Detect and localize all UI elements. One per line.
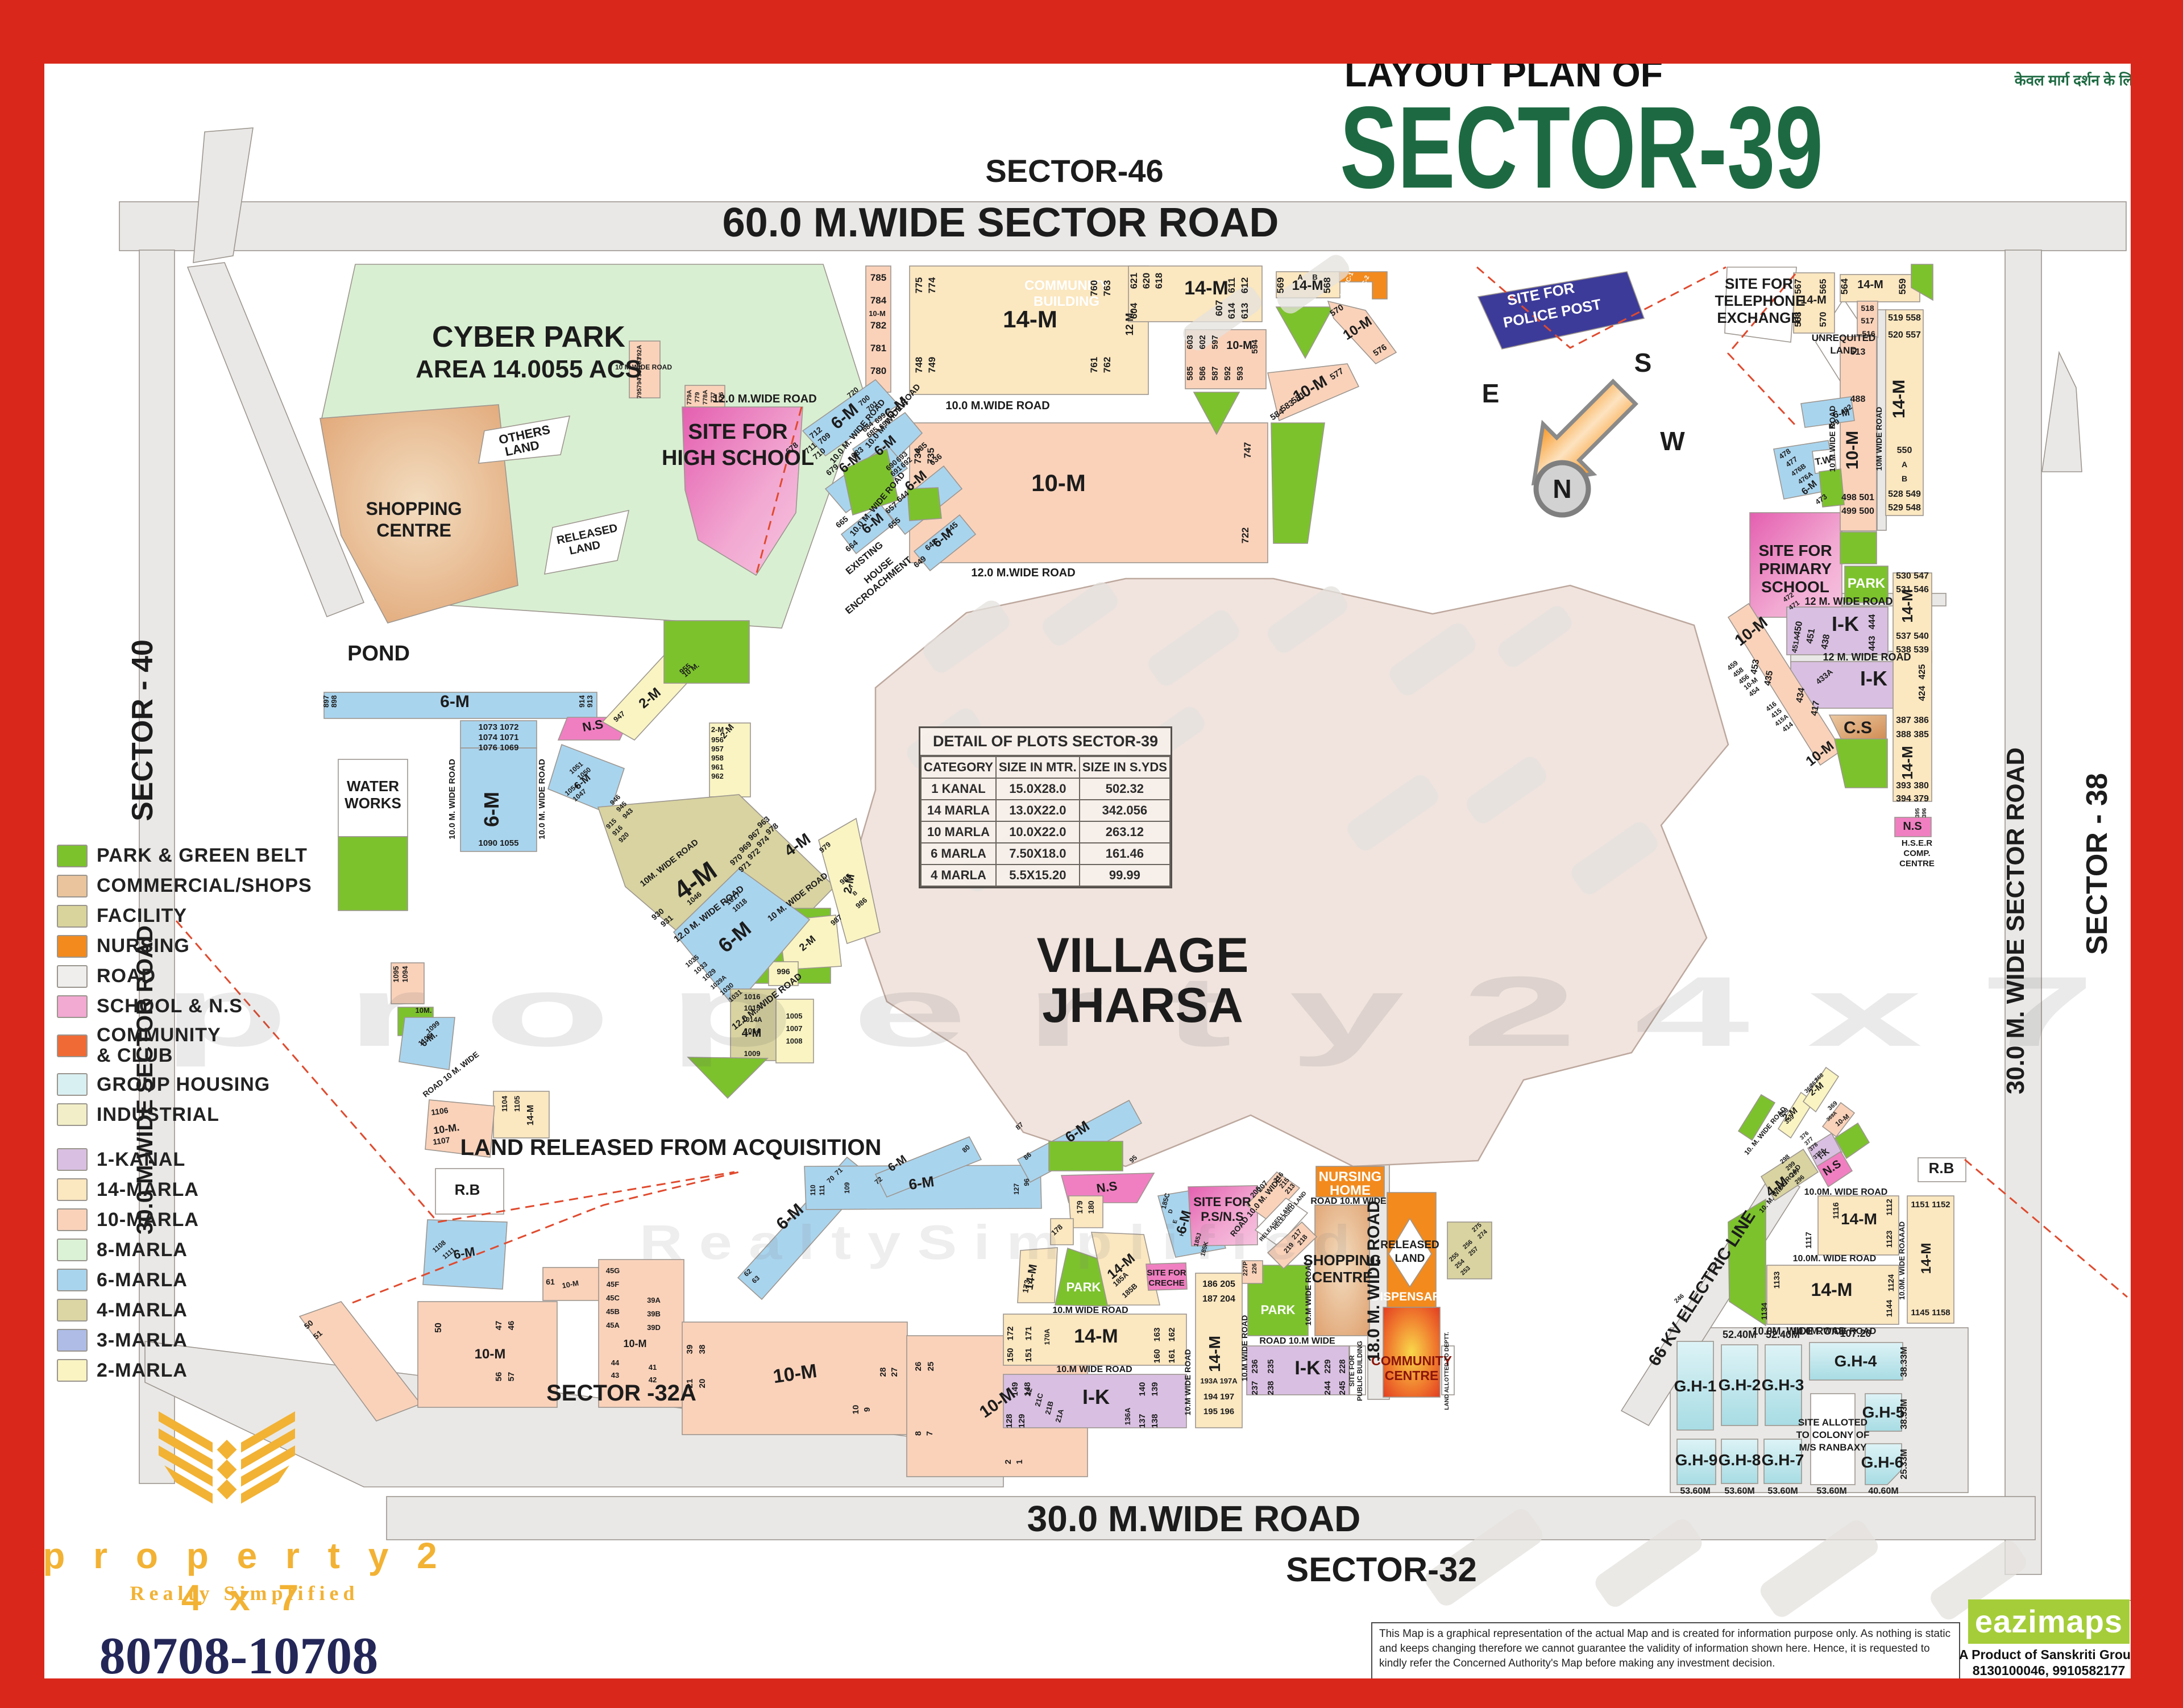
map-label: I-K <box>1082 1385 1110 1408</box>
map-label: 913 <box>586 695 594 708</box>
map-label: M/S RANBAXY <box>1799 1442 1867 1453</box>
map-label: C.S <box>1844 718 1872 737</box>
green-cs <box>1835 739 1887 788</box>
map-label: 180 <box>1086 1200 1095 1214</box>
map-label: SITE FOR <box>1725 275 1793 292</box>
map-label: LAND <box>1395 1253 1425 1265</box>
map-label: S <box>1634 348 1652 377</box>
map-label: 14-M <box>1841 1210 1877 1228</box>
map-label: 6-M <box>480 792 503 827</box>
map-label: SITE ALLOTED <box>1798 1417 1867 1428</box>
map-label: 193A 197A <box>1200 1377 1238 1385</box>
plot-table-cell: 4 MARLA <box>921 865 996 886</box>
map-label: PUBLIC BUILDING <box>1356 1341 1364 1401</box>
plot-table-header: SIZE IN MTR. <box>996 757 1080 778</box>
map-label: 10.0M. WIDE ROAD <box>1793 1327 1877 1336</box>
map-label: 245 <box>1338 1381 1347 1395</box>
legend-item-group-housing: GROUP HOUSING <box>57 1073 312 1096</box>
map-label: 762 <box>1102 357 1113 373</box>
map-label: 10-M <box>623 1338 646 1349</box>
legend-swatch <box>57 1103 88 1126</box>
plot-table-header: CATEGORY <box>921 757 996 778</box>
map-label: CRECHE <box>1148 1278 1184 1288</box>
map-label: SECTOR-32 <box>1286 1551 1477 1589</box>
map-label: G.H-4 <box>1835 1352 1877 1370</box>
map-label: 6-M <box>907 1173 935 1193</box>
map-label: 46 <box>507 1321 516 1331</box>
map-label: 39 <box>685 1345 695 1354</box>
plot-table-row: 4 MARLA5.5X15.2099.99 <box>921 865 1170 886</box>
legend-swatch <box>57 1299 88 1321</box>
map-label: 21 <box>685 1379 695 1389</box>
map-label: 594 <box>1250 339 1260 354</box>
map-label: TELEPHONE <box>1715 292 1806 309</box>
map-label: 570 <box>1819 312 1828 327</box>
map-label: 517 <box>1861 316 1874 325</box>
map-label: 14-M <box>1184 277 1228 299</box>
map-label: 395 <box>1915 808 1921 817</box>
disclaimer-text: This Map is a graphical representation o… <box>1371 1622 1960 1681</box>
map-label: 1005 <box>786 1012 803 1020</box>
map-label: 10-M <box>475 1347 506 1362</box>
map-label: 568 <box>1322 277 1333 293</box>
legend-item-industrial: INDUSTRIAL <box>57 1103 312 1126</box>
legend-item-2-marla: 2-MARLA <box>57 1359 312 1382</box>
acquisition-boundary-dash <box>1965 1160 2127 1297</box>
map-label: 499 500 <box>1841 506 1874 516</box>
map-label: NURSING <box>1319 1169 1382 1185</box>
map-label: 161 <box>1167 1349 1177 1363</box>
map-label: 898 <box>330 695 338 708</box>
map-label: 1073 1072 <box>479 722 519 732</box>
map-label: 897 <box>322 695 330 708</box>
map-label: R.B <box>1929 1160 1954 1177</box>
map-label: 761 <box>1089 357 1099 373</box>
legend-label: 4-MARLA <box>97 1300 188 1321</box>
legend-label: ROAD <box>97 966 156 987</box>
map-label: 567 <box>1794 279 1803 294</box>
map-label: 1074 1071 <box>479 733 519 742</box>
map-label: 186 205 <box>1202 1279 1235 1289</box>
map-label: LAND RELEASED FROM ACQUISITION <box>460 1135 882 1160</box>
map-label: 957 <box>711 745 724 753</box>
map-label: PRIMARY <box>1759 560 1832 577</box>
map-label: 14-M <box>1003 306 1057 333</box>
map-label: 45F <box>607 1280 619 1289</box>
map-label: 14-M <box>526 1105 536 1125</box>
map-label: 612 <box>1239 277 1250 293</box>
map-label: 1 <box>1015 1460 1024 1464</box>
map-label: ROAD 10.M WIDE <box>1310 1196 1387 1206</box>
map-label: 568 <box>1794 312 1803 327</box>
map-label: 10-M <box>1031 469 1086 496</box>
map-label: 38 <box>698 1345 707 1354</box>
frame-border-bottom <box>0 1678 2183 1708</box>
map-label: 488 <box>1850 394 1866 404</box>
map-label: SITE FOR <box>688 420 787 444</box>
map-label: 621 <box>1128 273 1139 289</box>
map-label: 10.0M. WIDE ROAD <box>1793 1254 1877 1264</box>
map-label: COMMUNITY <box>1371 1353 1452 1368</box>
map-label: 1144 <box>1885 1300 1894 1318</box>
map-label: 1145 1158 <box>1911 1308 1950 1318</box>
map-label: 14-M <box>1206 1336 1223 1372</box>
map-label: 760 <box>1089 280 1099 296</box>
map-label: 14-M <box>1800 294 1827 306</box>
map-label: G.H-5 <box>1862 1403 1905 1421</box>
map-label: 530 547 <box>1896 571 1929 581</box>
map-label: 529 548 <box>1888 503 1921 513</box>
legend-item-school-n-s: SCHOOL & N.S <box>57 995 312 1018</box>
map-label: N.S <box>1095 1179 1118 1196</box>
map-label: 537 540 <box>1896 631 1929 641</box>
map-label: 38.33M <box>1899 1399 1909 1429</box>
map-label: 528 549 <box>1888 489 1921 499</box>
map-label: I-K <box>1294 1357 1321 1379</box>
map-label: 618 <box>1153 273 1164 289</box>
legend-item-road: ROAD <box>57 965 312 988</box>
community-centre <box>1383 1307 1440 1397</box>
map-label: G.H-1 <box>1674 1377 1717 1395</box>
map-label: SHOPPING <box>366 498 462 519</box>
map-label: 53.60M <box>1680 1486 1710 1496</box>
map-label: 962 <box>711 772 724 780</box>
map-label: 778A <box>702 390 709 405</box>
map-label: 794 <box>636 377 643 388</box>
map-label: AREA 14.0055 ACS <box>416 355 642 383</box>
map-label: 604 <box>1128 302 1139 319</box>
map-label: 12.0 M.WIDE ROAD <box>971 567 1075 579</box>
map-label: 665 <box>834 514 850 529</box>
property24x7-logo-icon <box>156 1408 298 1508</box>
map-label: W <box>1660 426 1685 456</box>
map-label: 425 <box>1918 664 1927 680</box>
map-label: 569 <box>1275 277 1286 293</box>
map-label: 520 557 <box>1888 330 1921 340</box>
legend-swatch <box>57 845 88 867</box>
map-label: 42 <box>649 1375 657 1384</box>
plot-table-title: DETAIL OF PLOTS SECTOR-39 <box>920 728 1171 756</box>
map-label: G.H-2 <box>1719 1376 1761 1394</box>
map-label: 1015 <box>744 1004 761 1012</box>
map-label: G.H-3 <box>1762 1376 1804 1394</box>
map-label: 396 <box>1921 808 1928 817</box>
legend-label: COMMUNITY & CLUB <box>97 1025 221 1066</box>
map-label: 518 <box>1861 304 1874 313</box>
plot-table-cell: 14 MARLA <box>921 800 996 821</box>
legend-swatch <box>57 1239 88 1261</box>
map-label: 228 <box>1338 1359 1347 1373</box>
map-label: 45B <box>606 1307 620 1316</box>
map-label: A <box>1902 460 1907 469</box>
map-label: 109 <box>843 1182 851 1194</box>
map-label: 226 <box>1251 1264 1258 1274</box>
map-label: 722 <box>1240 527 1251 543</box>
legend-swatch <box>57 1148 88 1171</box>
legend-swatch <box>57 1359 88 1382</box>
green-mid-tri <box>1276 307 1333 358</box>
map-label: 388 385 <box>1896 730 1929 739</box>
map-label: 444 <box>1867 614 1877 630</box>
map-label: 40.60M <box>1868 1486 1898 1496</box>
map-label: 10.M WIDE ROAD <box>1183 1349 1192 1416</box>
map-label: 25 <box>926 1362 936 1372</box>
map-label: 14-M <box>1811 1279 1853 1300</box>
legend-swatch <box>57 965 88 988</box>
map-label: 958 <box>711 754 724 762</box>
map-label: 6-M <box>440 692 470 711</box>
map-label: 1117 <box>1804 1232 1813 1249</box>
map-label: 498 501 <box>1841 493 1874 502</box>
map-label: 61 <box>546 1277 555 1286</box>
map-label: 53.60M <box>1724 1486 1754 1496</box>
map-label: 961 <box>711 763 724 771</box>
map-label: 56 <box>494 1372 504 1382</box>
map-label: 26 <box>914 1362 923 1372</box>
map-label: 45A <box>606 1321 620 1329</box>
plot-table-cell: 7.50X18.0 <box>996 843 1080 865</box>
map-label: 519 558 <box>1888 313 1921 323</box>
map-label: 607 <box>1214 300 1225 316</box>
green-top-1 <box>1271 423 1325 543</box>
map-label: 8 <box>914 1431 923 1436</box>
map-label: 7 <box>925 1431 935 1436</box>
map-label: 128 <box>1005 1414 1014 1428</box>
eazimaps-product-line: A Product of Sanskriti Group <box>1944 1647 2153 1663</box>
map-label: 1090 1055 <box>479 838 519 848</box>
map-label: A <box>1297 273 1303 281</box>
map-label: 14-M <box>1919 1243 1934 1274</box>
eazimaps-phone-numbers: 8130100046, 9910582177 <box>1944 1663 2153 1678</box>
map-label: 1008 <box>786 1037 803 1045</box>
map-label: 1007 <box>786 1024 803 1033</box>
map-label: 10.M WIDE ROAD <box>1052 1306 1128 1315</box>
map-label: CYBER PARK <box>432 321 625 354</box>
map-label: 10M WIDE ROAD <box>1874 407 1883 471</box>
map-label: 585 <box>1185 366 1195 380</box>
map-label: 10.0 M.WIDE ROAD <box>945 400 1049 412</box>
legend-label: 8-MARLA <box>97 1240 188 1261</box>
legend-label: 10-MARLA <box>97 1210 199 1231</box>
map-label: 775 <box>914 277 924 293</box>
map-label: B <box>1312 273 1317 281</box>
map-label: 47 <box>494 1321 504 1331</box>
green-bl <box>1049 1141 1123 1171</box>
map-label: SCHOOL <box>1761 578 1829 596</box>
map-label: 613 <box>1239 303 1250 319</box>
map-label: PARK <box>1261 1303 1296 1317</box>
legend-label: COMMERCIAL/SHOPS <box>97 876 312 896</box>
plot-table-cell: 99.99 <box>1080 865 1170 886</box>
legend-label: SCHOOL & N.S <box>97 996 243 1017</box>
map-label: 763 <box>1102 280 1113 296</box>
map-label: 9 <box>862 1407 872 1412</box>
legend-item-commercial-shops: COMMERCIAL/SHOPS <box>57 875 312 897</box>
map-label: 1133 <box>1772 1271 1781 1289</box>
map-label: 27 <box>890 1368 899 1377</box>
map-label: N.S <box>1903 820 1921 833</box>
legend-label: GROUP HOUSING <box>97 1075 270 1095</box>
legend-swatch <box>57 905 88 928</box>
map-label: 996 <box>777 967 790 976</box>
legend-item-4-marla: 4-MARLA <box>57 1299 312 1321</box>
map-label: 781 <box>870 343 886 354</box>
map-label: SECTOR-46 <box>985 153 1163 189</box>
plot-table-cell: 6 MARLA <box>921 843 996 865</box>
map-label: 45C <box>606 1294 620 1302</box>
map-label: 1014 <box>744 1027 761 1035</box>
property24x7-wordmark: p r o p e r t y 2 4 x 7 <box>34 1535 455 1619</box>
map-label: 387 386 <box>1896 716 1929 725</box>
legend-item-community-club: COMMUNITY & CLUB <box>57 1025 312 1066</box>
map-label: 10.M WIDE ROAD <box>1240 1315 1249 1382</box>
water-works-green <box>338 837 408 911</box>
map-label: 443 <box>1867 636 1877 651</box>
map-label: PARK <box>1848 576 1886 591</box>
map-label: 136A <box>1123 1407 1132 1426</box>
map-label: SECTOR - 40 <box>126 639 159 821</box>
map-label: 784 <box>870 295 887 306</box>
legend-swatch <box>57 1073 88 1096</box>
map-label: 593 <box>1235 366 1245 380</box>
map-label: केवल मार्ग दर्शन के लिए <box>2014 72 2142 89</box>
map-label: 453 <box>1749 659 1761 675</box>
map-label: 163 <box>1152 1327 1162 1341</box>
map-label: 235 <box>1266 1359 1276 1373</box>
contact-phone: 80708-10708 <box>23 1626 455 1686</box>
legend-swatch <box>57 1178 88 1201</box>
map-label: 10.M WIDE ROAD <box>1056 1365 1132 1374</box>
plot-table-cell: 10 MARLA <box>921 821 996 843</box>
map-label: 52.40M <box>1723 1329 1757 1340</box>
map-label: 1151 1152 <box>1911 1200 1950 1210</box>
green-tr-1 <box>1840 532 1877 564</box>
plot-table-row: 6 MARLA7.50X18.0161.46 <box>921 843 1170 865</box>
map-label: 14-M <box>1074 1325 1118 1347</box>
map-label: 96 <box>1023 1178 1031 1186</box>
map-label: I-K <box>1832 612 1859 635</box>
map-label: 776 <box>718 392 725 402</box>
map-label: 229 <box>1323 1359 1333 1373</box>
map-label: 53.60M <box>1767 1486 1798 1496</box>
map-label: 137 <box>1138 1414 1147 1428</box>
plot-table-cell: 161.46 <box>1080 843 1170 865</box>
legend-swatch <box>57 1329 88 1352</box>
map-label: 170A <box>1043 1328 1051 1345</box>
map-label: 244 <box>1323 1381 1333 1395</box>
map-label: 39B <box>647 1310 661 1318</box>
map-label: 10.0M. WIDE ROAD <box>1804 1187 1888 1197</box>
map-label: 1009 <box>744 1049 761 1058</box>
map-label: 611 <box>1226 277 1237 293</box>
map-label: 12 M. WIDE ROAD <box>1804 596 1893 607</box>
map-label: I-K <box>1860 667 1887 690</box>
map-label: 14-M <box>1857 279 1883 291</box>
map-label: 238 <box>1266 1381 1276 1395</box>
map-label: 20 <box>698 1379 707 1389</box>
plot-table-row: 10 MARLA10.0X22.0263.12 <box>921 821 1170 843</box>
plot-detail-table: DETAIL OF PLOTS SECTOR-39 CATEGORYSIZE I… <box>919 726 1172 888</box>
plot-table-cell: 13.0X22.0 <box>996 800 1080 821</box>
map-label: 12.0 M.WIDE ROAD <box>712 393 816 405</box>
map-label: 565 <box>1819 279 1828 294</box>
map-label: 10M. <box>416 1006 432 1015</box>
map-label: 531 546 <box>1896 585 1929 595</box>
map-label: 57 <box>507 1372 516 1382</box>
map-label: HOME <box>1330 1183 1371 1198</box>
map-label: CENTRE <box>1899 859 1935 868</box>
map-label: 779A <box>686 390 693 405</box>
plot-table-cell: 502.32 <box>1080 778 1170 800</box>
map-label: 2-M <box>711 725 724 734</box>
map-label: 28 <box>878 1368 888 1377</box>
legend-item-park-green-belt: PARK & GREEN BELT <box>57 845 312 867</box>
map-label: 172 <box>1006 1326 1015 1340</box>
map-label: 43 <box>611 1371 619 1379</box>
legend-swatch <box>57 1269 88 1291</box>
map-label: SECTOR -32A <box>546 1381 696 1406</box>
legend-label: 1-KANAL <box>97 1150 185 1170</box>
legend-swatch <box>57 1208 88 1231</box>
map-label: 620 <box>1141 273 1152 289</box>
map-label: G.H-7 <box>1762 1451 1804 1469</box>
map-label: 586 <box>1198 366 1207 380</box>
map-label: 236 <box>1250 1359 1260 1373</box>
map-label: 1016 <box>744 992 761 1001</box>
map-label: 1095 <box>392 966 400 983</box>
map-label: EXCHANGE <box>1717 309 1800 326</box>
map-label: SITE FOR <box>1193 1195 1251 1209</box>
map-label: 39A <box>647 1296 661 1304</box>
map-label: 603 <box>1185 335 1195 349</box>
map-label: 41 <box>649 1363 657 1372</box>
brand-tagline: Realty Simplified <box>34 1581 455 1605</box>
map-label: 38.33M <box>1899 1347 1909 1377</box>
map-label: 30.0 M. WIDE SECTOR ROAD <box>2002 747 2030 1094</box>
map-label: 956 <box>711 735 724 744</box>
plot-table-header: SIZE IN S.YDS <box>1080 757 1170 778</box>
map-label: PARK <box>1066 1280 1101 1294</box>
map-label: 14-M <box>1890 380 1908 418</box>
map-label: 30.0 M.WIDE ROAD <box>1027 1498 1361 1539</box>
map-label: 602 <box>1198 335 1207 349</box>
map-label: 774 <box>927 277 937 293</box>
map-label: 10 M.WIDE ROAD <box>615 363 672 371</box>
map-label: 160 <box>1152 1349 1162 1363</box>
map-label: POND <box>347 642 410 666</box>
map-label: 1134 <box>1759 1303 1769 1320</box>
map-label: 60.0 M.WIDE SECTOR ROAD <box>723 200 1279 246</box>
legend: PARK & GREEN BELTCOMMERCIAL/SHOPSFACILIT… <box>57 845 312 1382</box>
map-label: G.H-9 <box>1675 1451 1718 1469</box>
map-label: 171 <box>1024 1326 1034 1340</box>
map-label: SECTOR - 38 <box>2081 773 2114 955</box>
map-label: G.H-6 <box>1861 1453 1904 1471</box>
legend-item-10-marla: 10-MARLA <box>57 1208 312 1231</box>
eazimaps-logo: eazimaps <box>1968 1599 2130 1644</box>
legend-item-1-kanal: 1-KANAL <box>57 1148 312 1171</box>
map-label: 614 <box>1226 302 1237 319</box>
map-label: 597 <box>1210 335 1220 349</box>
map-label: 45G <box>606 1266 620 1275</box>
legend-item-8-marla: 8-MARLA <box>57 1239 312 1261</box>
legend-item-6-marla: 6-MARLA <box>57 1269 312 1291</box>
map-label: 779 <box>694 392 701 402</box>
map-label: 14-M <box>1292 278 1323 293</box>
map-label: 914 <box>578 695 586 707</box>
map-label: SITE FOR <box>1348 1355 1356 1387</box>
map-label: 777 <box>710 392 717 402</box>
